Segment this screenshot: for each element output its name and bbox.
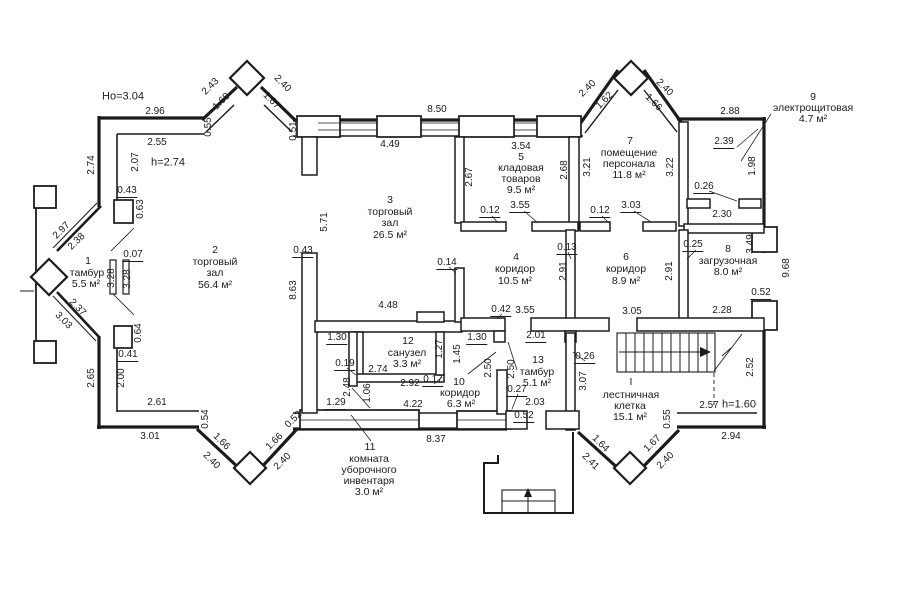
note-label: h=2.74 [151, 158, 185, 169]
dimension-label: 2.00 [117, 368, 127, 387]
dimension-label: 0.12 [479, 206, 500, 218]
room-label: 13 [532, 355, 544, 366]
room-label: торговый [193, 257, 238, 268]
dimension-label: 0.26 [574, 352, 595, 364]
room-label: электрощитовая [773, 103, 853, 114]
room-label: 3.3 м² [393, 359, 421, 370]
room-label: 3.0 м² [355, 487, 383, 498]
dimension-label: 0.26 [693, 182, 714, 194]
dimension-label: 3.55 [515, 306, 534, 316]
room-label: персонала [603, 159, 655, 170]
room-label: 9.5 м² [507, 185, 535, 196]
room-label: загрузочная [699, 256, 758, 267]
dimension-label: 0.51 [289, 121, 299, 140]
room-label: кладовая [498, 163, 544, 174]
room-label: I [630, 377, 633, 388]
dimension-label: 0.19 [334, 359, 355, 371]
dimension-label: 9.68 [782, 258, 792, 277]
room-label: 4 [513, 252, 519, 263]
dimension-label: 2.91 [665, 261, 675, 280]
dimension-label: 0.43 [116, 186, 137, 198]
note-label: Но=3.04 [102, 92, 144, 103]
dimension-label: 2.67 [465, 167, 475, 186]
room-label: 10 [453, 377, 465, 388]
dimension-label: 3.28 [107, 268, 117, 287]
room-label: 15.1 м² [613, 412, 647, 423]
dimension-label: 2.96 [145, 107, 164, 117]
stair-direction-arrow [700, 347, 711, 357]
room-label: уборочного [341, 465, 396, 476]
room-label: 9 [810, 92, 816, 103]
room-label: 6.3 м² [447, 399, 475, 410]
dimension-label: 4.22 [403, 400, 422, 410]
room-label: 4.7 м² [799, 114, 827, 125]
floor-plan: Но=3.042.962.431.682.401.670.550.512.55h… [0, 0, 899, 599]
dimension-label: 0.54 [201, 409, 211, 428]
dimension-label: 2.92 [400, 379, 419, 389]
column-bottom-right [614, 452, 646, 484]
room-label: лестничная [603, 390, 659, 401]
room-label: коридор [440, 388, 480, 399]
dimension-label: 8.50 [427, 105, 446, 115]
dimension-label: 2.88 [720, 107, 739, 117]
dimension-label: 1.27 [435, 339, 445, 358]
room-label: товаров [501, 174, 540, 185]
dimension-label: 2.48 [343, 377, 353, 396]
dimension-label: 3.55 [509, 201, 530, 213]
dimension-label: 1.30 [326, 333, 347, 345]
note-label: h=1.60 [722, 400, 756, 411]
dimension-label: 0.43 [292, 246, 313, 258]
room-label: 2 [212, 245, 218, 256]
dimension-label: 3.28 [123, 269, 133, 288]
room-label: коридор [495, 264, 535, 275]
dimension-label: 3.07 [579, 371, 589, 390]
room-label: 10.5 м² [498, 276, 532, 287]
dimension-label: 8.63 [289, 280, 299, 299]
dimension-label: 0.07 [122, 250, 143, 262]
dimension-label: 3.22 [666, 157, 676, 176]
room-label: зал [207, 268, 224, 279]
dimension-label: 5.71 [320, 212, 330, 231]
dimension-label: 2.91 [559, 261, 569, 280]
room-label: 11.8 м² [612, 170, 645, 181]
dimension-label: 0.25 [682, 240, 703, 252]
dimension-label: 2.65 [87, 368, 97, 387]
dimension-label: 0.52 [513, 411, 534, 423]
dimension-label: 4.49 [380, 140, 399, 150]
dimension-label: 1.45 [453, 344, 463, 363]
dimension-label: 0.12 [589, 206, 610, 218]
dimension-label: 3.03 [620, 201, 641, 213]
room-label: 7 [627, 136, 633, 147]
room-label: 1 [85, 256, 91, 267]
dimension-label: 3.01 [140, 432, 159, 442]
room-label: 8.9 м² [612, 276, 640, 287]
dimension-label: 2.30 [712, 210, 731, 220]
dimension-label: 2.50 [507, 359, 517, 378]
room-label: 8 [725, 244, 731, 255]
dimension-label: 0.17 [422, 375, 443, 387]
dimension-label: 0.55 [204, 117, 214, 136]
dimension-label: 0.14 [436, 258, 457, 270]
dimension-label: 2.52 [746, 357, 756, 376]
room-label: 3 [387, 195, 393, 206]
dimension-label: 2.03 [525, 398, 544, 408]
room-label: 11 [365, 442, 376, 453]
room-label: 5 [518, 152, 524, 163]
room-label: 8.0 м² [714, 267, 742, 278]
room-label: клетка [614, 401, 646, 412]
room-label: коридор [606, 264, 646, 275]
dimension-label: 4.48 [378, 301, 397, 311]
dimension-label: 2.94 [721, 432, 740, 442]
room-label: тамбур [70, 268, 104, 279]
dimension-label: 1.29 [325, 398, 346, 410]
dimension-label: 0.27 [506, 385, 527, 397]
room-label: санузел [388, 348, 426, 359]
dimension-label: 1.06 [363, 383, 373, 402]
room-label: зал [382, 218, 399, 229]
dimension-label: 2.61 [147, 398, 166, 408]
room-label: комната [349, 454, 389, 465]
dimension-label: 2.57 [699, 401, 718, 411]
dimension-label: 2.28 [712, 306, 731, 316]
dimension-label: 3.21 [583, 157, 593, 176]
dimension-label: 2.68 [560, 160, 570, 179]
dimension-label: 0.52 [750, 288, 771, 300]
dimension-label: 2.74 [87, 155, 97, 174]
dimension-label: 2.07 [131, 152, 141, 171]
dimension-label: 3.05 [622, 307, 641, 317]
column-bottom-left [234, 452, 266, 484]
room-label: помещение [601, 148, 657, 159]
dimension-label: 2.55 [147, 138, 166, 148]
dimension-label: 0.64 [134, 323, 144, 342]
room-label: 56.4 м² [198, 280, 232, 291]
dimension-label: 0.41 [117, 350, 138, 362]
steps-up-arrow [524, 488, 532, 497]
dimension-label: 1.30 [466, 333, 487, 345]
dimension-label: 0.13 [556, 243, 577, 255]
dimension-label: 2.50 [484, 358, 494, 377]
dimension-label: 2.39 [713, 137, 734, 149]
dimension-label: 2.01 [525, 331, 546, 343]
room-label: 12 [402, 336, 414, 347]
room-label: инвентаря [344, 476, 395, 487]
room-label: торговый [368, 207, 413, 218]
dimension-label: 0.42 [490, 305, 511, 317]
column-top-right [614, 61, 648, 95]
room-label: тамбур [520, 367, 554, 378]
dimension-label: 0.63 [136, 199, 146, 218]
dimension-label: 8.37 [426, 435, 445, 445]
dimension-label: 2.74 [368, 365, 387, 375]
dimension-label: 3.49 [746, 234, 756, 253]
room-label: 26.5 м² [373, 230, 407, 241]
room-label: 6 [623, 252, 629, 263]
room-label: 5.5 м² [72, 279, 100, 290]
dimension-label: 0.55 [663, 409, 673, 428]
dimension-label: 1.98 [748, 156, 758, 175]
exit-porch-bottom [484, 432, 573, 513]
